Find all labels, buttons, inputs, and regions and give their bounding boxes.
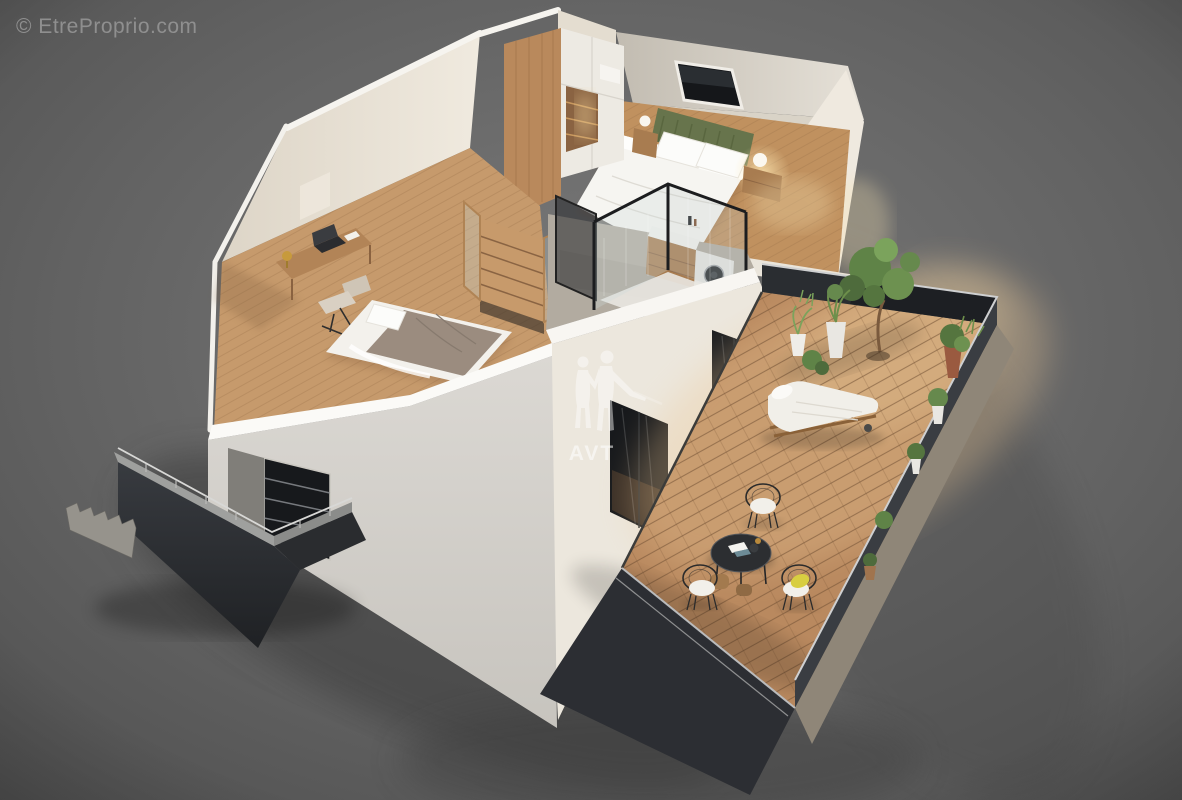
vignette <box>0 0 1182 800</box>
floor-plan-art <box>0 0 1182 800</box>
copyright-watermark: © EtreProprio.com <box>16 14 198 40</box>
logo-text: AVT <box>546 442 638 466</box>
rendered-image: © EtreProprio.com AVT <box>0 0 1182 800</box>
